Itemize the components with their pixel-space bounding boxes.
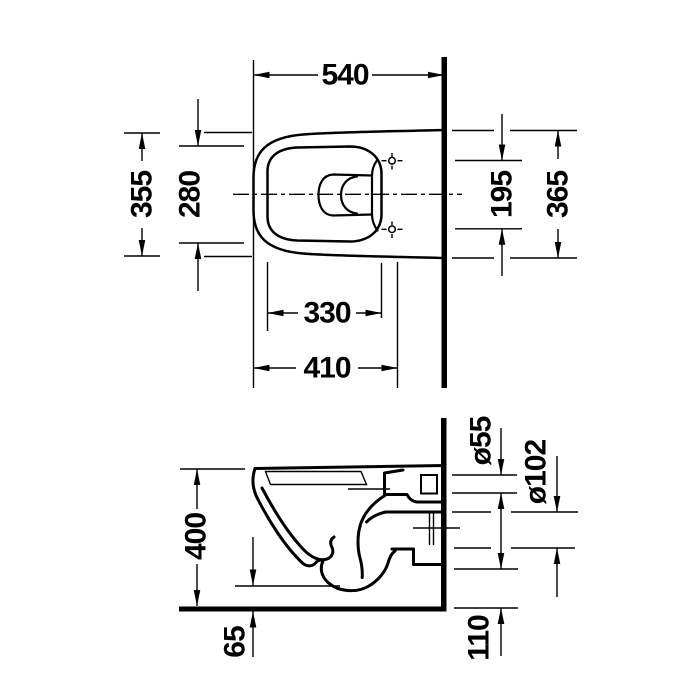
outlet-top-flare <box>372 160 378 176</box>
trap-back-curve <box>358 496 385 578</box>
seat-section <box>266 472 367 485</box>
flush-pipe-stub <box>421 475 437 494</box>
top-view: 540 355 280 195 <box>124 57 577 388</box>
dim-label-280: 280 <box>174 171 207 218</box>
dim-label-d55: ø55 <box>465 416 498 465</box>
dim-label-365: 365 <box>542 171 575 218</box>
dim-hole-spacing: 195 <box>455 114 522 276</box>
right-extension-lines <box>452 475 578 608</box>
dim-label-330: 330 <box>303 297 350 330</box>
dim-label-d102: ø102 <box>520 440 553 505</box>
dim-inner-length: 330 <box>268 262 382 331</box>
wall-line <box>442 57 448 388</box>
trap-bulge-outline <box>303 551 395 591</box>
technical-drawing-canvas: 540 355 280 195 <box>0 0 700 700</box>
floor-line <box>179 607 447 612</box>
dim-label-400: 400 <box>180 513 213 560</box>
rim-top-line <box>255 466 444 469</box>
hole-circle <box>389 226 396 233</box>
dim-outlet-diameter: ø102 <box>520 440 558 597</box>
dim-outlet-height: 110 <box>463 608 502 661</box>
dim-label-355: 355 <box>126 171 159 218</box>
dim-overall-depth: 540 <box>254 59 445 389</box>
hole-circle <box>389 157 396 164</box>
outlet-bracket <box>392 549 441 565</box>
fixing-hole-lower <box>382 222 403 239</box>
wall-line <box>441 418 447 611</box>
dim-bottom-clearance: 65 <box>219 537 341 658</box>
trap-outlet-join <box>367 512 387 522</box>
dim-label-65: 65 <box>219 626 252 658</box>
dim-label-110: 110 <box>463 615 496 661</box>
outlet-bottom-flare <box>372 215 378 231</box>
side-view: 400 65 ø55 ø1 <box>179 416 578 660</box>
toilet-dimension-drawing: 540 355 280 195 <box>0 0 700 700</box>
fixing-hole-upper <box>382 153 403 170</box>
dim-label-540: 540 <box>321 59 368 92</box>
dim-label-195: 195 <box>486 171 519 218</box>
dim-label-410: 410 <box>303 352 350 385</box>
